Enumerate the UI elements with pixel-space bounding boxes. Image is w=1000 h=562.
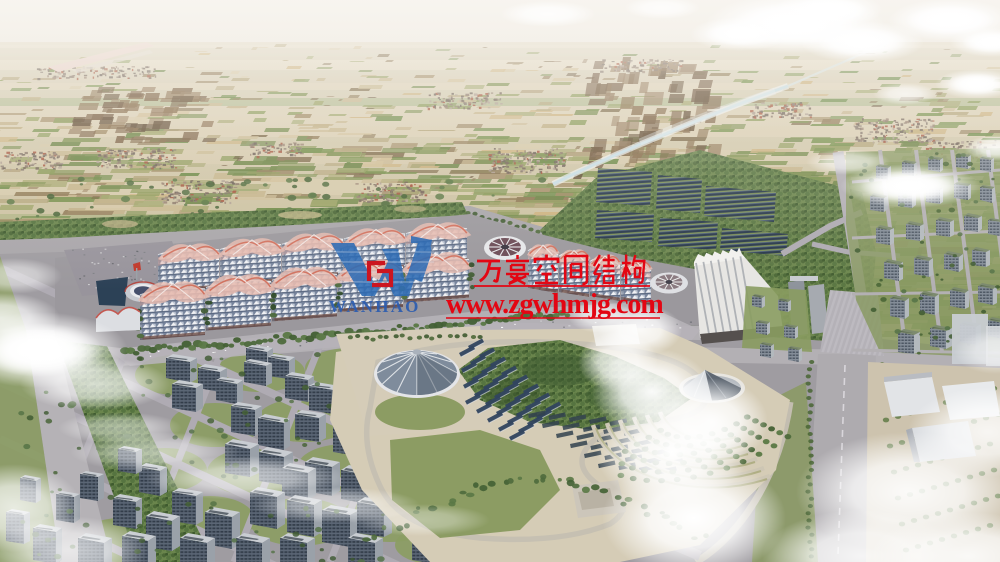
svg-text:WANHAO: WANHAO [329, 297, 421, 316]
svg-text:www.zgwhmjg.com: www.zgwhmjg.com [446, 289, 663, 320]
